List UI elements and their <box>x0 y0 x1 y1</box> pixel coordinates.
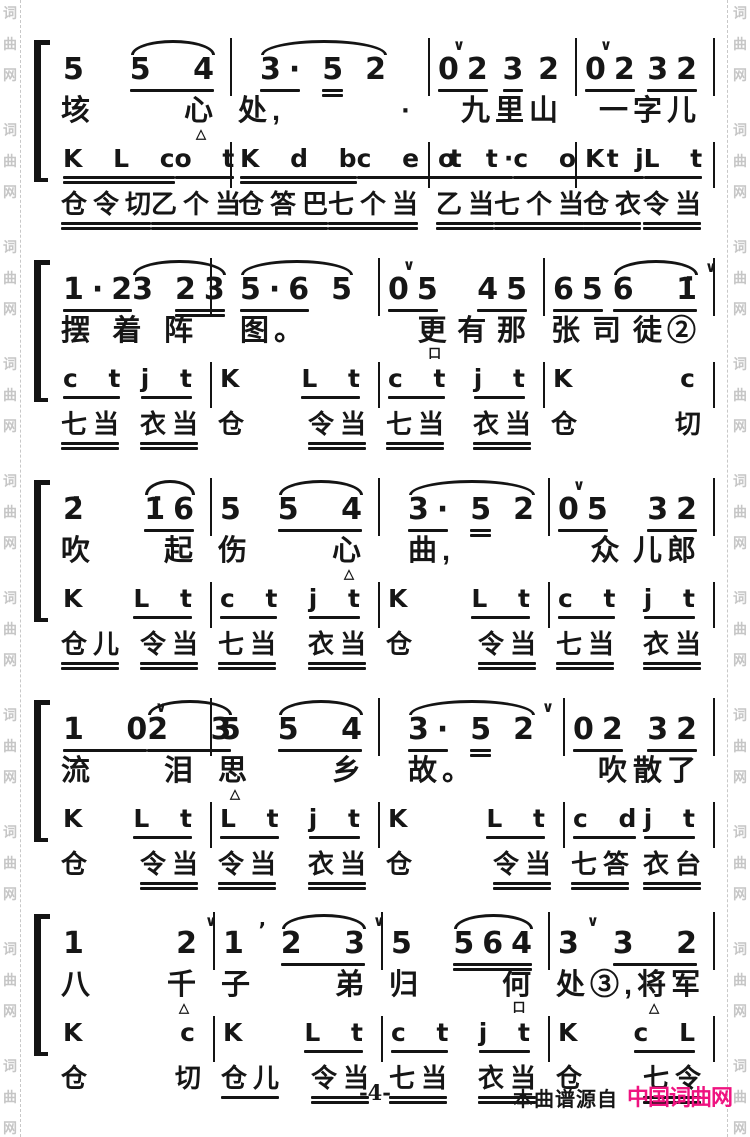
note-group: 3 2 <box>613 928 697 966</box>
perc-letter-group-underline <box>585 176 644 179</box>
perc-letter-group-underline <box>133 616 192 619</box>
note-group-underline <box>322 89 343 92</box>
pause-marker-triangle-icon: △ <box>179 1001 189 1014</box>
measure: 故。 <box>380 756 565 802</box>
watermark-text: 曲 <box>733 739 747 753</box>
perc-letter-group-underline <box>63 396 120 399</box>
measure: 七答衣台 <box>565 850 715 896</box>
percussion-letter-row: K L co tK d bc e to t·c o tK jL t <box>55 142 715 188</box>
measure: o t·c o t <box>430 142 577 188</box>
perc-letter-group-text: K d b <box>240 145 363 173</box>
measure: 仓切 <box>55 1064 215 1110</box>
watermark-text: 网 <box>3 1004 17 1018</box>
score-system: 55 43·5202∨3202∨32垓心△处,·九里山一字儿K L co tK … <box>55 38 715 236</box>
note-group-underline <box>503 89 524 92</box>
perc-letter-group: j t <box>474 365 525 399</box>
note-group-text: 3 <box>132 274 161 306</box>
note-group-text: 2 <box>538 54 567 86</box>
perc-syllable-group: 乙当 <box>436 190 494 230</box>
measure: c tj t <box>380 362 545 408</box>
note-group: 65 <box>553 274 603 312</box>
perc-letter-group-text: j t <box>644 805 701 833</box>
score-system: 1 0∨2 355 43·52∨0232流泪思△乡故。吹散了KL tL tj t… <box>55 698 715 896</box>
measure: 1’2 3∨ <box>215 912 383 970</box>
lyric-text: 张 <box>551 316 585 346</box>
watermark-text: 曲 <box>3 388 17 402</box>
lyric-syllable: 图。 <box>240 316 308 346</box>
measure: 七当衣当 <box>380 410 545 456</box>
watermark-text: 词 <box>733 708 747 722</box>
note-group-text: 2 <box>176 928 205 960</box>
lyric-text: 着 <box>112 316 146 346</box>
lyric-syllable: 山 <box>529 96 563 126</box>
note-group-underline <box>147 749 231 752</box>
perc-syllable-group-text: 令当 <box>140 850 204 879</box>
system-bracket <box>34 42 50 180</box>
perc-letter-group-text: o t <box>175 145 241 173</box>
perc-letter-group: L t <box>133 805 192 839</box>
perc-syllable-group-underline <box>583 222 641 225</box>
note-group-text: 02 <box>438 54 496 86</box>
system-bracket <box>34 262 50 400</box>
lyric-text: 伤 <box>218 536 252 566</box>
note-group: 5 <box>322 54 343 97</box>
note-group-text: 65 <box>553 274 611 306</box>
perc-syllable-group-underline <box>436 227 494 230</box>
perc-syllable-group-text: 令当 <box>478 630 542 659</box>
lyric-syllable: 司 <box>592 316 626 346</box>
perc-syllable-group-underline <box>238 222 328 225</box>
source-attribution: 本曲谱源自 <box>513 1083 618 1112</box>
note-group-text: 2 <box>513 714 542 746</box>
note-group: 3∨ <box>558 928 579 960</box>
watermark-text: 词 <box>733 240 747 254</box>
measure: c tj t <box>55 362 212 408</box>
perc-syllable-group: 令当 <box>308 410 366 450</box>
lyric-syllable: 千△ <box>167 970 201 1014</box>
measure: 流泪 <box>55 756 212 802</box>
perc-letter-group: c t <box>558 585 615 619</box>
perc-letter-group: L t <box>644 145 703 179</box>
watermark-text: 词 <box>733 357 747 371</box>
watermark-text: 网 <box>3 770 17 784</box>
note-group-text: 5 <box>331 274 360 306</box>
note-group-underline <box>647 749 697 752</box>
perc-letter-group-underline <box>471 616 530 619</box>
note-group-underline <box>63 309 132 312</box>
lyrics-row: 八千△子弟归何口处③,将△军 <box>55 970 715 1016</box>
perc-syllable-group-underline <box>386 442 444 445</box>
note-group: 2 3 <box>147 714 231 752</box>
watermark-text: 曲 <box>3 739 17 753</box>
measure: 02∨32 <box>577 38 715 96</box>
perc-letter-group: K <box>63 805 82 833</box>
melody-row: 12∨1’2 3∨55643∨3 2 <box>55 912 715 970</box>
perc-letter-group: K <box>388 805 407 833</box>
perc-letter-group-text: j t <box>644 585 701 613</box>
lyric-text: 泪 <box>164 756 198 786</box>
note-group-underline <box>260 89 300 92</box>
measure: 仓令当 <box>380 850 565 896</box>
measure: KL t <box>380 802 565 848</box>
perc-letter-group: K j <box>585 145 644 179</box>
lyric-text: 思 <box>218 756 252 786</box>
tie-group: 564 <box>453 928 532 971</box>
note-group: 32 <box>647 494 697 532</box>
perc-letter-group: K L c <box>63 145 175 184</box>
watermark-text: 曲 <box>733 856 747 870</box>
perc-syllable-group: 衣台 <box>643 850 701 890</box>
measure: 处③,将△军 <box>550 970 715 1016</box>
perc-syllable-group-text: 仓 <box>386 630 418 659</box>
perc-syllable-group-text: 仓儿 <box>221 1064 285 1093</box>
lyric-syllable: 儿郎 <box>633 536 701 566</box>
lyric-text: 吹 <box>598 756 632 786</box>
watermark-text: 网 <box>733 1121 747 1135</box>
watermark-text: 词 <box>3 591 17 605</box>
note-group: 3· <box>260 54 300 97</box>
perc-letter-group-text: K <box>63 805 88 833</box>
perc-letter-group: o t <box>175 145 235 179</box>
note-group-underline <box>613 309 697 312</box>
lyric-syllable: 八 <box>61 970 95 1000</box>
measure: 仓令当 <box>55 850 212 896</box>
measure: 05∨45 <box>380 258 545 316</box>
measure: Kc L <box>550 1016 715 1062</box>
watermark-text: 曲 <box>733 622 747 636</box>
perc-letter-group-text: K <box>553 365 578 393</box>
lyric-text: 儿郎 <box>633 536 701 566</box>
watermark-text: 词 <box>3 1059 17 1073</box>
tie-group: 5·65 <box>240 274 352 312</box>
watermark-text: 曲 <box>3 856 17 870</box>
note-group-underline <box>477 309 527 312</box>
note-group: 3· <box>408 494 448 537</box>
measure: 一字儿 <box>577 96 715 142</box>
perc-syllable-group-text: 切 <box>675 410 707 439</box>
perc-letter-group-text: L t <box>304 1019 369 1047</box>
perc-letter-group-text: K <box>63 585 88 613</box>
perc-syllable-group-underline <box>494 222 584 225</box>
perc-syllable-group-underline <box>493 882 551 885</box>
perc-syllable-group-text: 令当 <box>643 190 707 219</box>
lyric-text: 里 <box>495 96 529 126</box>
watermark-text: 网 <box>3 302 17 316</box>
perc-letter-group-text: L t <box>133 805 198 833</box>
lyric-syllable: 归 <box>389 970 423 1000</box>
perc-letter-group-text: L t <box>133 585 198 613</box>
note-group-text: 2 <box>513 494 542 526</box>
breath-mark-icon: ∨ <box>403 256 415 274</box>
perc-letter-group-text: c t <box>391 1019 454 1047</box>
measure: 九里山 <box>430 96 577 142</box>
perc-syllable-group-text: 仓 <box>386 850 418 879</box>
perc-syllable-group-text: 仓衣 <box>583 190 647 219</box>
note-group-underline <box>130 89 214 92</box>
lyric-text: 儿 <box>667 96 701 126</box>
watermark-text: 网 <box>3 536 17 550</box>
perc-syllable-group-text: 衣台 <box>643 850 707 879</box>
note-group: 5 <box>470 714 491 757</box>
tie-group: 1̇6 <box>144 494 194 532</box>
note-group-text: 5 4 <box>130 54 222 86</box>
note-group: 5·6 <box>240 274 309 312</box>
lyric-syllable: 伤 <box>218 536 252 566</box>
lyric-text: 故。 <box>408 756 476 786</box>
note-group-text: 564 <box>453 928 540 960</box>
breath-mark-icon: ∨ <box>600 36 612 54</box>
melody-row: 1 0∨2 355 43·52∨0232 <box>55 698 715 756</box>
perc-syllable-group-text: 令当 <box>218 850 282 879</box>
note-group: 5 <box>63 54 84 86</box>
perc-syllable-group-underline <box>140 667 198 670</box>
perc-letter-group: K <box>223 1019 242 1047</box>
watermark-text: 曲 <box>3 154 17 168</box>
perc-syllable-group-text: 仓 <box>61 850 93 879</box>
watermark-text: 网 <box>733 536 747 550</box>
lyric-syllable: 着 <box>112 316 146 346</box>
note-group: 2 <box>538 54 559 86</box>
note-group-text: 5 4 <box>278 494 370 526</box>
note-group-underline <box>647 529 697 532</box>
watermark-text: 曲 <box>3 1090 17 1104</box>
note-group-text: 2 3 <box>281 928 373 960</box>
watermark-text: 词 <box>733 6 747 20</box>
perc-letter-group: j t <box>479 1019 530 1053</box>
note-group: 2∨ <box>513 714 534 757</box>
note-group-text: 32 <box>647 714 705 746</box>
measure: 仓衣令当 <box>577 190 715 236</box>
perc-letter-group-underline <box>309 616 360 619</box>
perc-letter-group: K <box>220 365 239 393</box>
note-group: 5 4 <box>278 714 362 752</box>
note-group-underline <box>558 529 608 532</box>
perc-letter-group-text: j t <box>309 805 366 833</box>
measure: 仓儿令当 <box>55 630 212 676</box>
measure: 05∨32 <box>550 478 715 536</box>
perc-letter-group: c d <box>573 805 636 839</box>
perc-syllable-group: 令当 <box>478 630 536 670</box>
perc-syllable-group: 切 <box>175 1064 201 1093</box>
tie-group: 2 3∨ <box>281 928 365 966</box>
perc-letter-group-text: c t <box>558 585 621 613</box>
perc-syllable-group-underline <box>643 227 701 230</box>
measure: 仓令当 <box>212 410 380 456</box>
perc-letter-group-text: j t <box>474 365 531 393</box>
lyric-text: 乡 <box>332 756 366 786</box>
lyric-syllable: 起 <box>164 536 198 566</box>
perc-letter-group-underline <box>474 396 525 399</box>
perc-letter-group: L t <box>220 805 279 839</box>
perc-syllable-group-underline <box>478 667 536 670</box>
lyric-text: 垓 <box>61 96 95 126</box>
note-group-underline <box>281 963 365 966</box>
perc-syllable-group: 衣当 <box>140 410 198 450</box>
perc-syllable-group: 衣当 <box>308 630 366 670</box>
perc-letter-group: L t <box>133 585 192 619</box>
watermark-text: 曲 <box>733 154 747 168</box>
perc-syllable-group-text: 乙个当 <box>151 190 247 219</box>
perc-letter-group: c <box>680 365 695 393</box>
measure: 656 1̇∨ <box>545 258 715 316</box>
note-group: 3 <box>132 274 153 317</box>
perc-syllable-group-underline <box>643 887 701 890</box>
system-bracket <box>34 916 50 1054</box>
perc-letter-group-underline <box>644 616 695 619</box>
lyric-text: 图。 <box>240 316 308 346</box>
perc-letter-group-text: L t <box>220 805 285 833</box>
lyric-syllable: 摆 <box>61 316 95 346</box>
perc-letter-group-text: K <box>220 365 245 393</box>
lyric-text: 徒② <box>633 316 701 346</box>
note-group-text: 32 <box>647 494 705 526</box>
score-page: { "page": { "number": "-4-", "source_lab… <box>0 0 750 1137</box>
measure: 处,· <box>232 96 430 142</box>
perc-letter-group: c <box>180 1019 195 1047</box>
lyric-syllable: 张 <box>551 316 585 346</box>
note-group-text: 1 <box>223 928 252 960</box>
perc-letter-group-underline <box>220 836 279 839</box>
measure: 55 4 <box>212 698 380 756</box>
perc-syllable-group-underline <box>140 447 198 450</box>
watermark-text: 曲 <box>3 973 17 987</box>
watermark-text: 曲 <box>733 1090 747 1104</box>
watermark-text: 词 <box>3 942 17 956</box>
perc-syllable-group-underline <box>308 887 366 890</box>
perc-syllable-group-underline <box>140 882 198 885</box>
measure: 3·52 <box>232 38 430 96</box>
perc-syllable-group: 仓 <box>551 410 577 439</box>
note-group-text: 02 <box>585 54 643 86</box>
watermark-text: 曲 <box>3 271 17 285</box>
perc-syllable-group-underline <box>473 442 531 445</box>
perc-syllable-group-underline <box>308 667 366 670</box>
watermark-text: 曲 <box>3 622 17 636</box>
lyric-syllable: 众 <box>590 536 624 566</box>
watermark-text: 网 <box>733 419 747 433</box>
watermark-text: 网 <box>3 419 17 433</box>
pause-marker-triangle-icon: △ <box>649 1001 659 1014</box>
watermark-text: 词 <box>733 474 747 488</box>
perc-syllable-group-text: 仓答巴 <box>238 190 334 219</box>
perc-syllable-group-text: 七当 <box>386 410 450 439</box>
note-group-underline <box>408 749 448 752</box>
note-group-text: 1·2 <box>63 274 140 306</box>
measure: 12∨ <box>55 912 215 970</box>
note-group: 5 4 <box>278 494 362 532</box>
note-group-underline <box>388 309 438 312</box>
lyric-text: 心 <box>332 536 366 566</box>
measure: 伤心△ <box>212 536 380 582</box>
note-group: 1̇6 <box>144 494 194 532</box>
tie-group: 323 <box>132 274 225 317</box>
watermark-text: 网 <box>733 770 747 784</box>
perc-syllable-group-underline <box>436 222 494 225</box>
watermark-text: 网 <box>733 185 747 199</box>
note-group: 1 <box>223 928 244 960</box>
lyric-syllable: 曲, <box>408 536 455 566</box>
perc-syllable-group: 令当 <box>643 190 701 230</box>
breath-mark-icon: ∨ <box>453 36 465 54</box>
measure: 0232 <box>565 698 715 756</box>
perc-letter-group-text: c t <box>220 585 283 613</box>
perc-letter-group-underline <box>486 836 545 839</box>
dashed-border-right <box>727 0 728 1137</box>
note-group-underline <box>438 89 488 92</box>
breath-mark-icon: ∨ <box>573 476 585 494</box>
lyric-text: 司 <box>592 316 626 346</box>
perc-syllable-group-underline <box>643 222 701 225</box>
watermark-text: 网 <box>733 887 747 901</box>
perc-syllable-group-underline <box>140 662 198 665</box>
breath-marker-square-icon: 口 <box>512 1001 525 1014</box>
perc-letter-group-text: L t <box>486 805 551 833</box>
lyric-text: 那 <box>497 316 531 346</box>
note-group-text: 5 <box>470 714 499 746</box>
lyric-text: 将 <box>637 970 671 1000</box>
note-group: 3· <box>408 714 448 757</box>
lyric-syllable: 吹 <box>61 536 95 566</box>
note-group-underline <box>553 309 603 312</box>
note-group: 2∨ <box>176 928 197 960</box>
perc-letter-group: c t <box>388 365 445 399</box>
perc-syllable-group-underline <box>308 442 366 445</box>
perc-syllable-group-text: 七个当 <box>494 190 590 219</box>
perc-letter-group: c t <box>220 585 277 619</box>
perc-letter-group-underline <box>479 1050 530 1053</box>
perc-letter-group-underline <box>573 836 636 839</box>
perc-letter-group-underline <box>309 836 360 839</box>
note-group-underline <box>647 89 697 92</box>
perc-syllable-group: 仓儿 <box>221 1064 279 1099</box>
lyric-text: 散了 <box>633 756 701 786</box>
measure: 1 0∨2 3 <box>55 698 212 756</box>
lyric-syllable: 儿 <box>667 96 701 126</box>
perc-syllable-group-text: 令当 <box>493 850 557 879</box>
watermark-column-left: 词曲网词曲网词曲网词曲网词曲网词曲网词曲网词曲网词曲网词曲网 <box>3 0 21 1137</box>
measure: 55 4 <box>55 38 232 96</box>
perc-syllable-group: 衣当 <box>308 850 366 890</box>
perc-letter-group-underline <box>304 1050 363 1053</box>
lyric-text: 有 <box>457 316 491 346</box>
note-group-underline <box>573 749 623 752</box>
perc-syllable-group-underline <box>218 667 276 670</box>
note-group: 3 <box>503 54 524 92</box>
note-group: 5 <box>391 928 412 960</box>
perc-letter-group-text: c t <box>63 365 126 393</box>
lyric-text: · <box>401 96 416 126</box>
watermark-text: 网 <box>733 68 747 82</box>
perc-letter-group: j t <box>644 585 695 619</box>
tie-group: 5 4 <box>278 714 362 752</box>
note-group-text: 32 <box>647 54 705 86</box>
measure: 张司徒② <box>545 316 715 362</box>
melody-row: 2̇1̇655 43·5205∨32 <box>55 478 715 536</box>
measure: K L co t <box>55 142 232 188</box>
measure: K d bc e t <box>232 142 430 188</box>
perc-syllable-group-underline <box>238 227 328 230</box>
perc-syllable-group: 仓 <box>61 850 87 879</box>
perc-letter-group-underline <box>558 616 615 619</box>
perc-syllable-group: 乙个当 <box>151 190 241 230</box>
perc-letter-group-underline <box>644 176 703 179</box>
lyric-text: 字 <box>633 96 667 126</box>
perc-syllable-group-underline <box>583 227 641 230</box>
perc-syllable-group-underline <box>140 887 198 890</box>
perc-letter-group-underline <box>63 181 175 184</box>
perc-syllable-group: 令当 <box>493 850 551 890</box>
note-group: 05∨ <box>558 494 608 532</box>
